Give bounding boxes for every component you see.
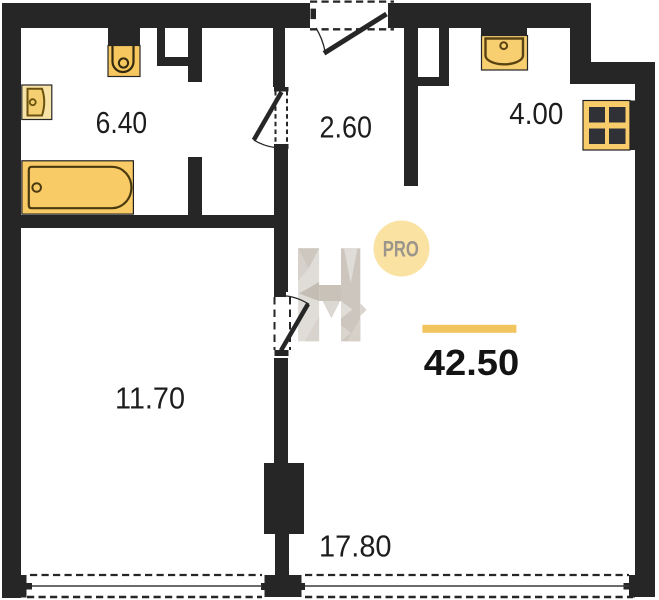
svg-text:17.80: 17.80 bbox=[319, 529, 392, 563]
svg-text:2.60: 2.60 bbox=[320, 111, 373, 145]
svg-text:6.40: 6.40 bbox=[96, 106, 148, 140]
svg-text:42.50: 42.50 bbox=[424, 342, 520, 383]
svg-text:PRO: PRO bbox=[383, 237, 419, 262]
svg-text:11.70: 11.70 bbox=[115, 382, 185, 416]
svg-text:4.00: 4.00 bbox=[509, 97, 563, 131]
